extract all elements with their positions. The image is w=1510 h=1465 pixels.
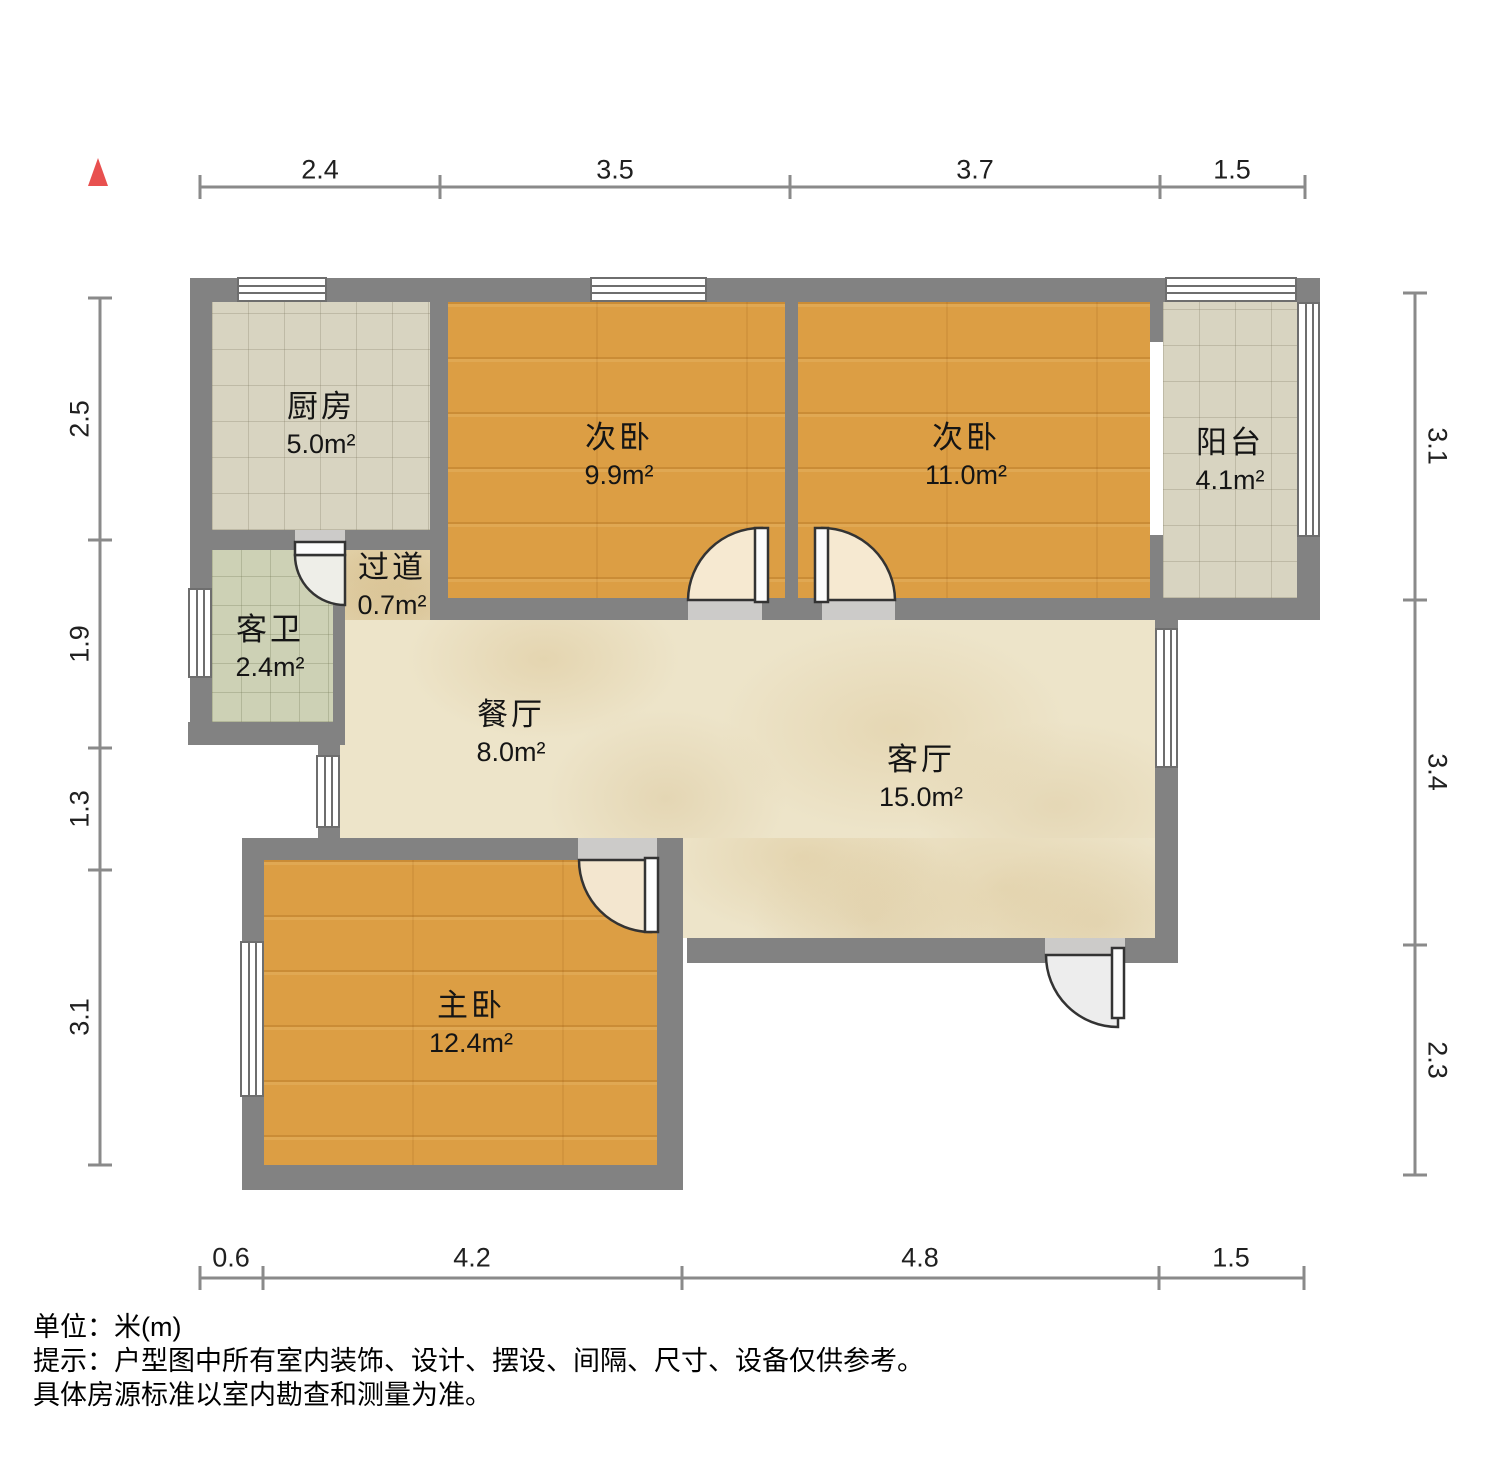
living-label: 客厅 15.0m²: [879, 734, 963, 813]
bedroom-a-label: 次卧 9.9m²: [584, 412, 653, 491]
bathroom-door-threshold: [295, 530, 345, 550]
bedroom-a-window: [590, 277, 707, 302]
dim-top-3: 3.7: [956, 155, 994, 186]
north-arrow-icon: [88, 158, 108, 186]
wall-segment: [657, 838, 683, 1190]
dim-top-4: 1.5: [1213, 155, 1251, 186]
wall-segment: [1297, 537, 1320, 620]
dim-bottom-1: 0.6: [212, 1243, 250, 1274]
dim-top-1: 2.4: [301, 155, 339, 186]
wall-segment: [430, 598, 688, 620]
tip-note-2: 具体房源标准以室内勘查和测量为准。: [33, 1378, 924, 1412]
master-window: [240, 941, 264, 1097]
wall-segment: [333, 550, 345, 745]
living-floor-lower: [683, 838, 1155, 938]
balcony-top-window: [1165, 277, 1297, 302]
dim-left-4: 3.1: [65, 998, 96, 1036]
hallway-label: 过道 0.7m²: [357, 542, 426, 621]
wall-segment: [1150, 598, 1320, 620]
footer-notes: 单位：米(m) 提示：户型图中所有室内装饰、设计、摆设、间隔、尺寸、设备仅供参考…: [33, 1310, 924, 1412]
dim-left-2: 1.9: [65, 625, 96, 663]
dim-bottom-3: 4.8: [901, 1243, 939, 1274]
wall-segment: [785, 278, 798, 620]
dim-left-3: 1.3: [65, 790, 96, 828]
dining-window: [316, 755, 340, 828]
dim-right-2: 3.4: [1422, 753, 1453, 791]
balcony-side-window: [1297, 302, 1320, 537]
kitchen-label: 厨房 5.0m²: [286, 381, 355, 460]
unit-note: 单位：米(m): [33, 1310, 924, 1344]
dim-bottom-4: 1.5: [1212, 1243, 1250, 1274]
dim-top-2: 3.5: [596, 155, 634, 186]
dining-living-floor: [340, 620, 1155, 838]
bedroom-b-label: 次卧 11.0m²: [925, 412, 1007, 491]
master-door-threshold: [578, 838, 657, 860]
wall-segment: [242, 1165, 683, 1190]
wall-segment: [895, 598, 1163, 620]
entry-door-arc: [1046, 955, 1118, 1027]
dim-left-1: 2.5: [65, 400, 96, 438]
wall-segment: [430, 278, 448, 620]
floorplan-canvas: 厨房 5.0m² 次卧 9.9m² 次卧 11.0m² 阳台 4.1m² 过道 …: [0, 0, 1510, 1465]
dim-right-1: 3.1: [1422, 427, 1453, 465]
bedroom-a-door-threshold: [688, 598, 762, 620]
dining-label: 餐厅 8.0m²: [476, 689, 545, 768]
wall-segment: [1297, 278, 1320, 304]
tip-note-1: 提示：户型图中所有室内装饰、设计、摆设、间隔、尺寸、设备仅供参考。: [33, 1344, 924, 1378]
kitchen-window: [237, 277, 327, 302]
dim-right-3: 2.3: [1422, 1041, 1453, 1079]
wall-segment: [190, 530, 295, 550]
wall-segment: [1125, 938, 1178, 963]
dim-bottom-2: 4.2: [453, 1243, 491, 1274]
living-window: [1155, 628, 1178, 768]
entry-door-threshold: [1045, 938, 1125, 963]
wall-segment: [1150, 278, 1163, 342]
balcony-label: 阳台 4.1m²: [1195, 417, 1264, 496]
bathroom-label: 客卫 2.4m²: [235, 604, 304, 683]
bathroom-window: [188, 588, 212, 678]
wall-segment: [687, 938, 1045, 963]
wall-segment: [242, 838, 578, 860]
bedroom-b-door-threshold: [822, 598, 895, 620]
wall-segment: [188, 722, 345, 745]
master-label: 主卧 12.4m²: [429, 980, 513, 1059]
